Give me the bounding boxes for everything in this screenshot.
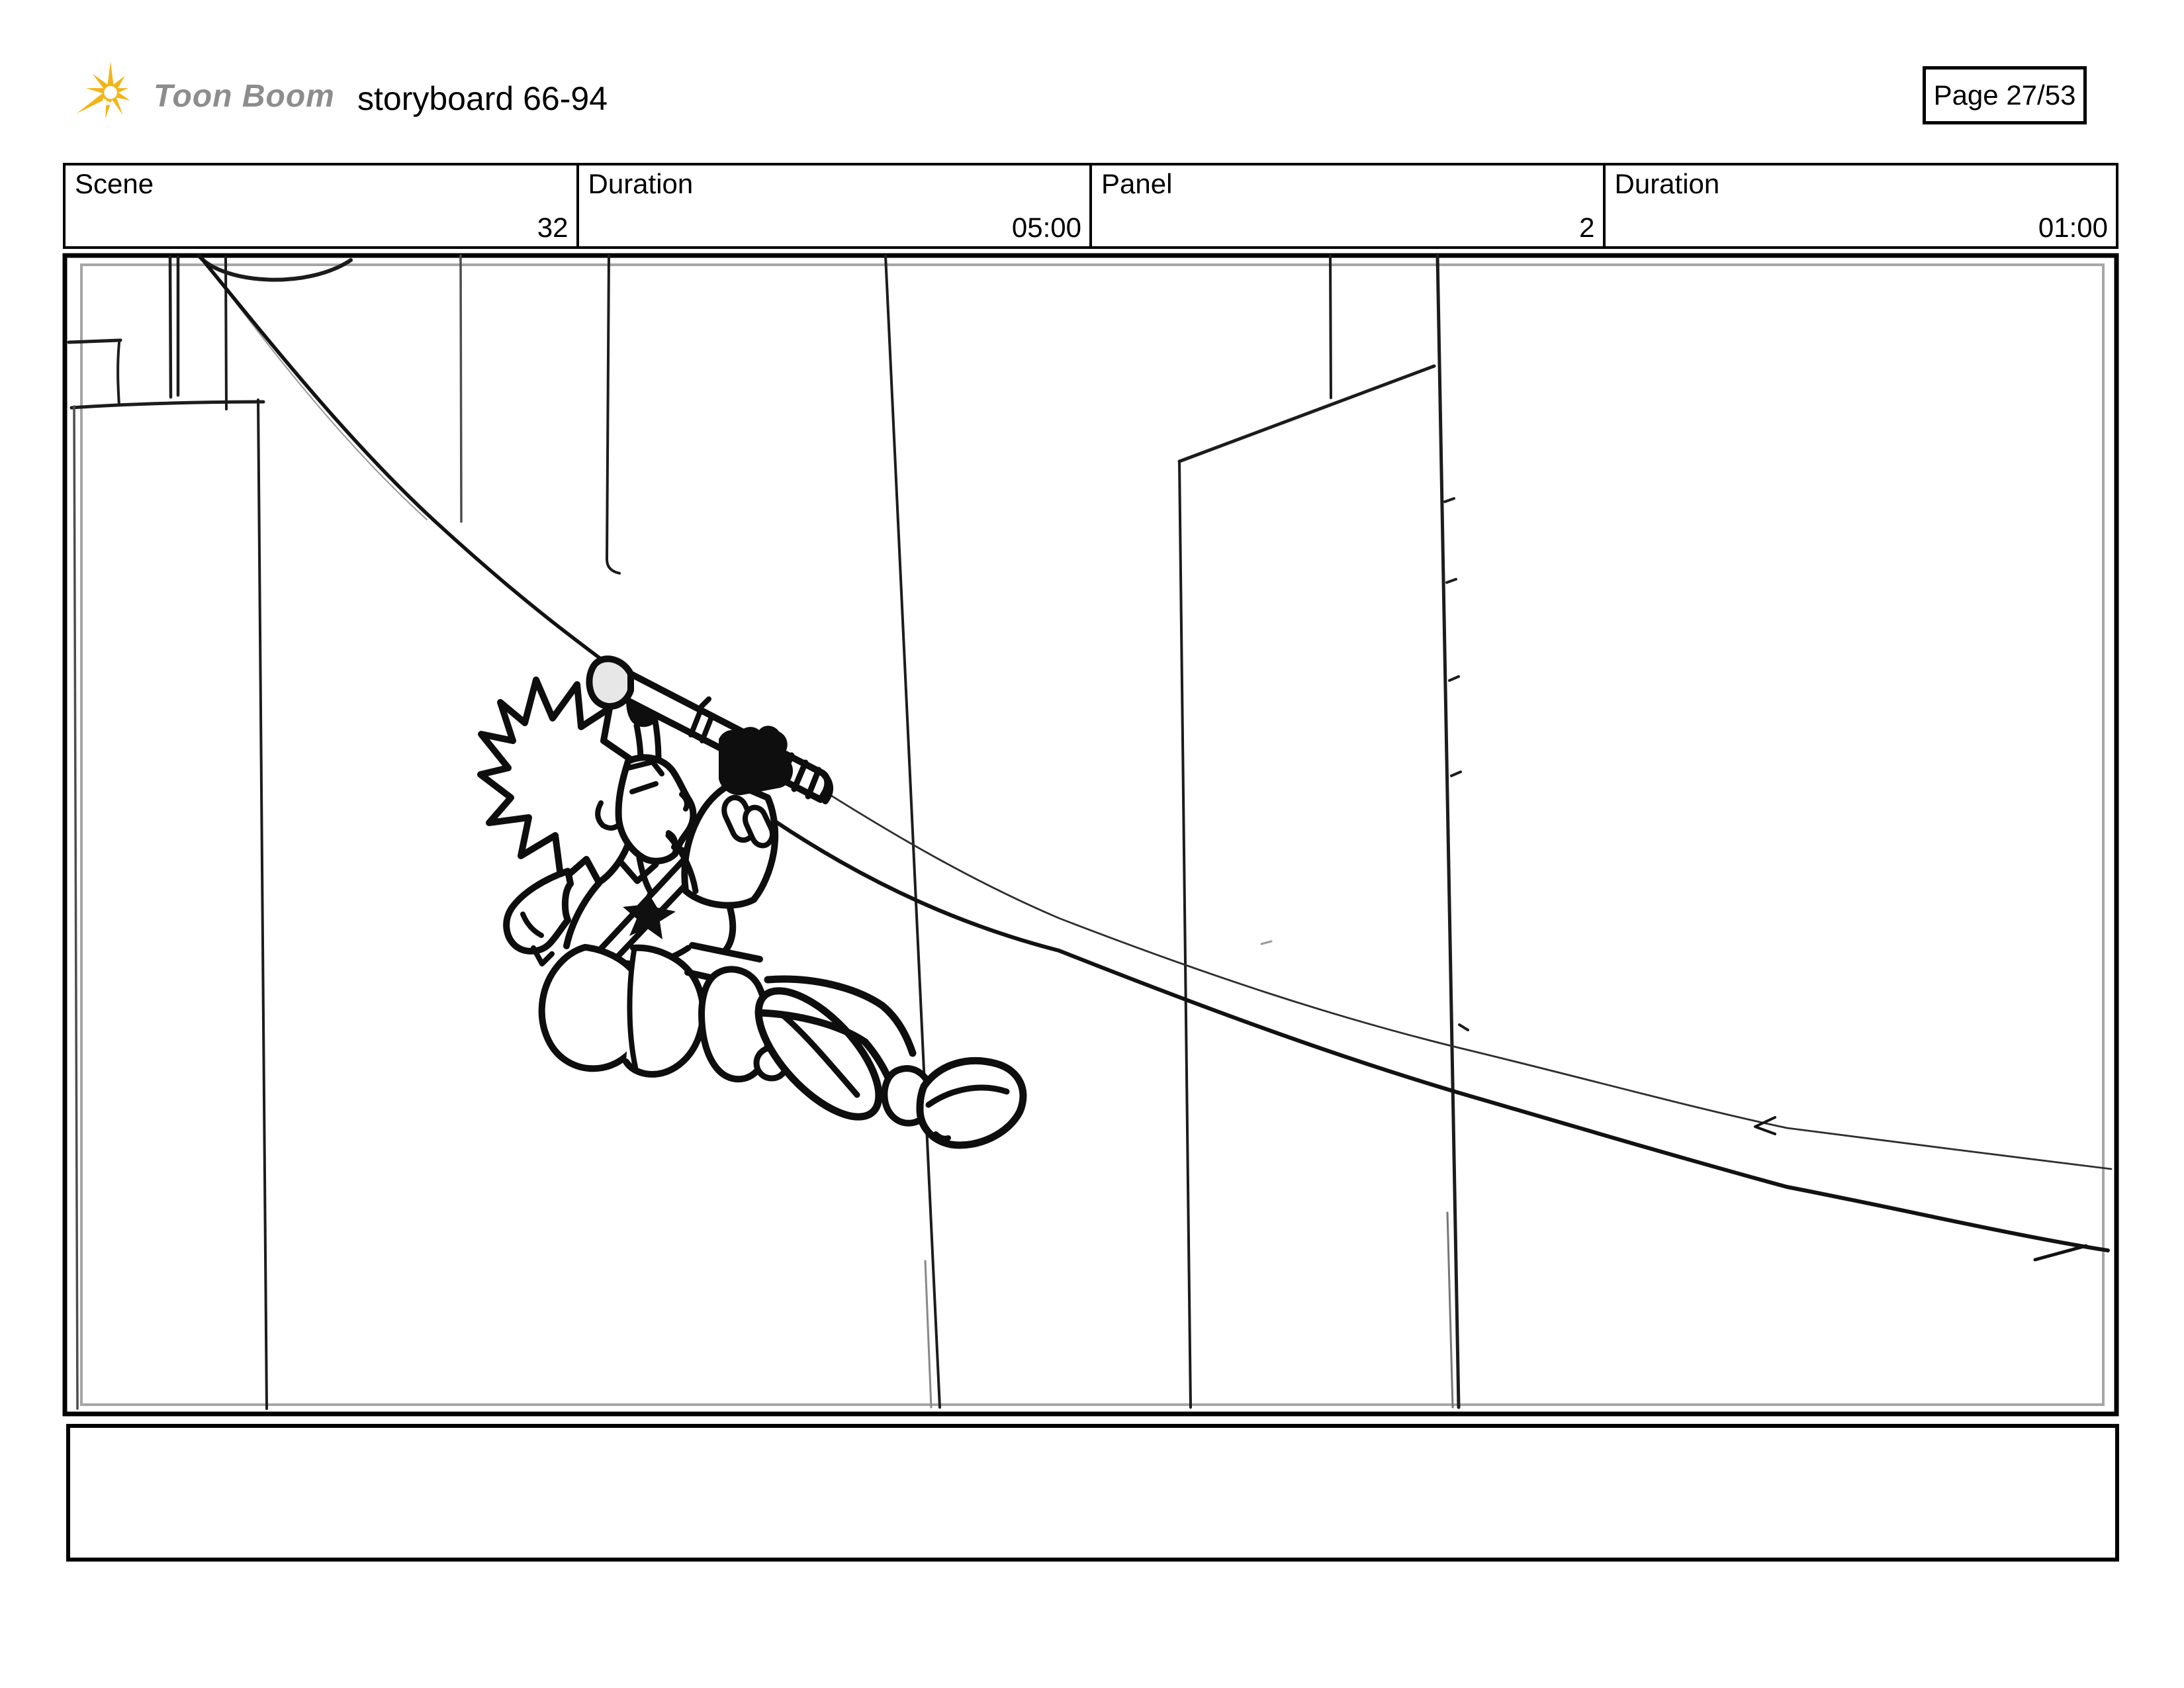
- gripping-hand: [719, 726, 793, 795]
- caption-box: [66, 1424, 2119, 1562]
- panel-frame: [65, 256, 2116, 1414]
- storyboard-page: Toon Boom storyboard 66-94 Page 27/53 Sc…: [0, 0, 2184, 1688]
- handle-knob: [589, 659, 631, 706]
